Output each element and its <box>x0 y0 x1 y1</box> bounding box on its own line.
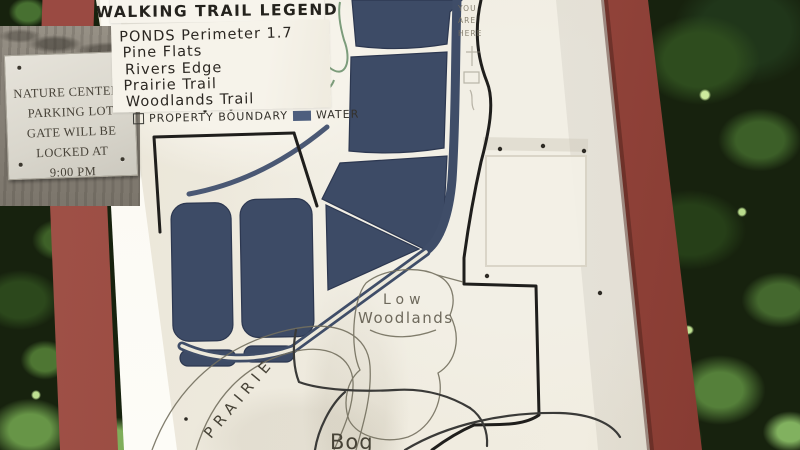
you-are-here-sketch <box>464 46 480 110</box>
pond-top <box>352 0 462 49</box>
pond-upper <box>349 52 447 153</box>
screw-icon <box>17 66 21 70</box>
pond-cell-2 <box>240 198 314 337</box>
water-label: WATER <box>316 108 360 122</box>
pond-cell-1 <box>171 202 233 341</box>
ghost-rectangle <box>486 156 586 266</box>
low-woodlands-label-line1: Low <box>383 292 426 308</box>
trail-sign-photo: NATURE CENTERS PARKING LOT GATE WILL BE … <box>0 0 800 450</box>
you-are-here-label: YOU ARE HERE <box>458 3 496 40</box>
bog-label: Bog <box>330 430 374 450</box>
property-boundary-swatch-icon <box>133 113 144 124</box>
screw-icon <box>19 163 23 167</box>
water-swatch-icon <box>293 110 311 120</box>
low-woodlands-label-line2: Woodlands <box>358 309 454 327</box>
legend-trails-paper: PONDS Perimeter 1.7 Pine Flats Rivers Ed… <box>111 19 331 112</box>
